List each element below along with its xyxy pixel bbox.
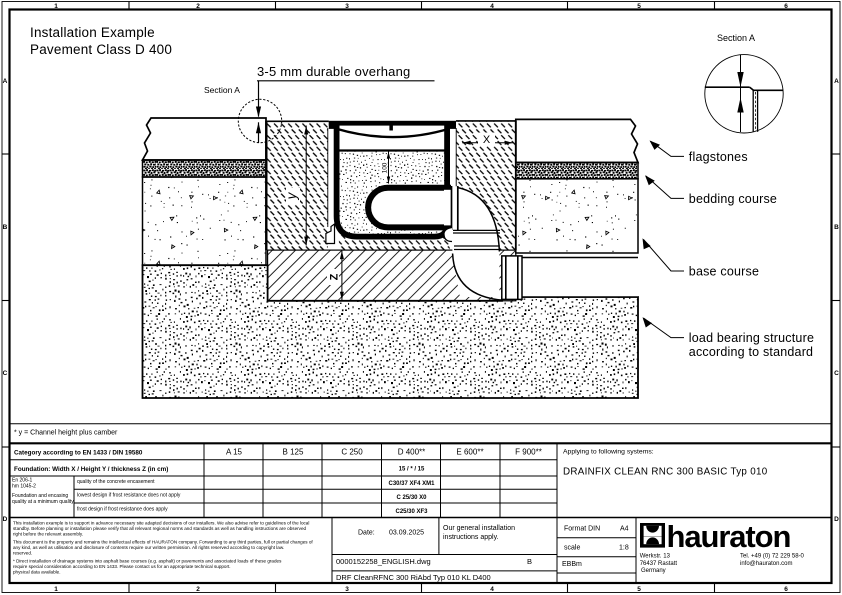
svg-text:This document is the property: This document is the property and remain… (13, 540, 313, 545)
svg-text:D 400**: D 400** (398, 448, 426, 457)
svg-text:C: C (834, 370, 839, 377)
svg-text:This installation example is t: This installation example is to support … (13, 521, 309, 526)
svg-text:according to standard: according to standard (689, 345, 813, 359)
svg-text:4: 4 (490, 3, 494, 10)
svg-text:0000152258_ENGLISH.dwg: 0000152258_ENGLISH.dwg (336, 557, 431, 566)
svg-text:Section A: Section A (204, 85, 240, 95)
svg-text:Applying to following systems:: Applying to following systems: (563, 449, 654, 456)
svg-text:B 125: B 125 (283, 448, 304, 457)
svg-text:lowest design if frost resista: lowest design if frost resistance does n… (77, 493, 181, 499)
svg-text:scale: scale (564, 545, 580, 552)
svg-text:Z: Z (329, 273, 341, 280)
svg-text:load bearing structure: load bearing structure (689, 331, 814, 345)
svg-text:* y = Channel height plus cam: * y = Channel height plus camber (14, 430, 118, 437)
svg-text:EBBm: EBBm (562, 561, 582, 568)
svg-text:1:8: 1:8 (619, 545, 629, 552)
svg-text:Section A: Section A (717, 33, 755, 43)
svg-text:5: 5 (637, 3, 641, 10)
svg-text:flagstones: flagstones (689, 150, 748, 164)
svg-text:DRAINFIX CLEAN RNC 300 BASIC T: DRAINFIX CLEAN RNC 300 BASIC Typ 010 (563, 467, 768, 478)
svg-text:100: 100 (382, 162, 389, 173)
svg-text:5: 5 (637, 586, 641, 593)
svg-text:E 600**: E 600** (456, 448, 483, 457)
svg-text:C: C (3, 370, 8, 377)
svg-text:hm 1045-2: hm 1045-2 (12, 484, 36, 490)
svg-text:require special consideration: require special consideration according … (13, 564, 231, 569)
svg-text:15 / * / 15: 15 / * / 15 (399, 467, 425, 473)
svg-text:Pavement Class D 400: Pavement Class D 400 (30, 42, 172, 57)
svg-text:physical data available.: physical data available. (13, 570, 61, 575)
svg-text:A: A (834, 78, 839, 85)
svg-text:B: B (834, 224, 839, 231)
svg-text:D: D (3, 516, 8, 523)
svg-text:X: X (483, 134, 491, 146)
svg-text:Foundation: Width X / Height: Foundation: Width X / Height Y / thickne… (14, 466, 168, 473)
svg-text:hauraton: hauraton (667, 519, 791, 554)
svg-text:6: 6 (784, 586, 788, 593)
svg-text:standby. Before planning or in: standby. Before planning or installation… (13, 526, 307, 531)
svg-text:* Direct installation of drain: * Direct installation of drainage system… (13, 559, 282, 564)
svg-text:DRF CleanRFNC 300 RiAbd Typ 01: DRF CleanRFNC 300 RiAbd Typ 010 KL D400 (336, 573, 491, 582)
svg-text:quality of the concrete encase: quality of the concrete encasement (77, 479, 155, 485)
svg-text:A4: A4 (620, 526, 629, 533)
svg-text:bedding course: bedding course (689, 192, 777, 206)
svg-text:1: 1 (54, 3, 58, 10)
svg-text:C30/37 XF4 XM1: C30/37 XF4 XM1 (388, 481, 435, 487)
svg-text:Our general installation: Our general installation (443, 525, 515, 532)
svg-text:F 900**: F 900** (515, 448, 542, 457)
svg-text:A 15: A 15 (226, 448, 243, 457)
svg-text:Werkstr. 13: Werkstr. 13 (640, 554, 671, 560)
svg-text:3-5 mm durable overhang: 3-5 mm durable overhang (257, 64, 410, 79)
svg-text:D: D (834, 516, 839, 523)
svg-text:4: 4 (490, 586, 494, 593)
svg-text:76437 Rastatt: 76437 Rastatt (640, 561, 678, 567)
svg-text:C 25/30 X0: C 25/30 X0 (396, 495, 427, 501)
svg-text:3: 3 (345, 3, 349, 10)
svg-text:2: 2 (196, 586, 200, 593)
svg-text:y: y (284, 191, 299, 200)
svg-text:any kind, as well as utilisati: any kind, as well as utilisation and dis… (13, 545, 284, 550)
svg-text:3: 3 (345, 586, 349, 593)
svg-text:C 250: C 250 (341, 448, 363, 457)
svg-text:info@hauraton.com: info@hauraton.com (740, 561, 792, 567)
svg-text:1: 1 (54, 586, 58, 593)
svg-text:A: A (3, 78, 8, 85)
svg-text:reserved.: reserved. (13, 551, 32, 556)
svg-text:B: B (3, 224, 8, 231)
svg-text:instructions apply.: instructions apply. (443, 534, 499, 541)
svg-text:Category according to EN 1433: Category according to EN 1433 / DIN 1958… (14, 450, 143, 457)
svg-text:6: 6 (784, 3, 788, 10)
svg-text:frost design if frost resistan: frost design if frost resistance does ap… (77, 507, 168, 513)
svg-text:Installation Example: Installation Example (30, 25, 155, 40)
svg-text:base course: base course (689, 265, 759, 279)
svg-text:quality at a minimum quality: quality at a minimum quality (12, 499, 74, 505)
svg-text:C25/30 XF3: C25/30 XF3 (395, 509, 428, 515)
svg-text:Date:: Date: (358, 530, 375, 537)
svg-text:B: B (527, 557, 532, 566)
svg-text:2: 2 (196, 3, 200, 10)
svg-text:Tel. +49 (0) 72 229 58-0: Tel. +49 (0) 72 229 58-0 (740, 554, 805, 560)
svg-text:Format DIN: Format DIN (564, 526, 600, 533)
svg-text:right before the relevant asse: right before the relevant assembly. (13, 532, 83, 537)
svg-text:Germany: Germany (641, 568, 666, 574)
svg-text:03.09.2025: 03.09.2025 (389, 530, 424, 537)
